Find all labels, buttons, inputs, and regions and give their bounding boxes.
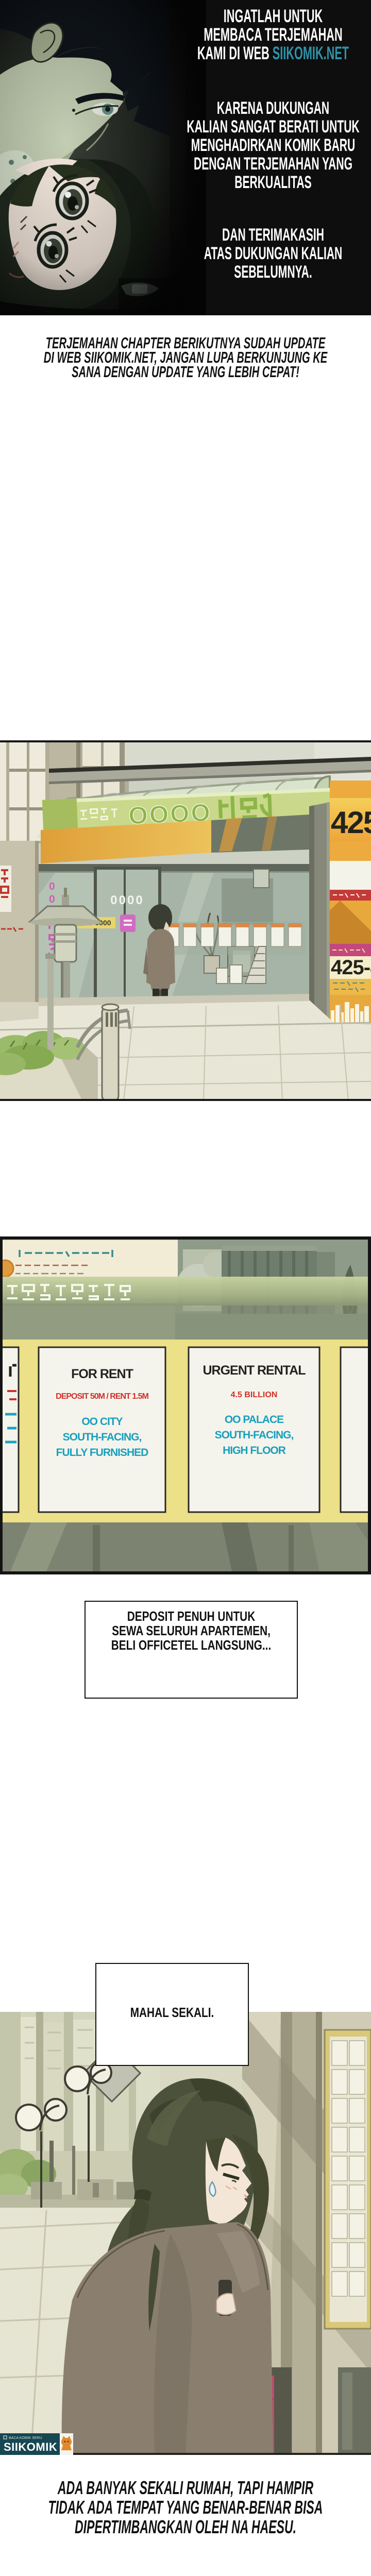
svg-text:SOUTH-FACING,: SOUTH-FACING, [63, 1431, 142, 1443]
svg-text:0000: 0000 [110, 893, 144, 907]
svg-text:OO PALACE: OO PALACE [225, 1414, 284, 1426]
svg-text:SIIKOMIK: SIIKOMIK [4, 2441, 57, 2453]
svg-text:BACA KOMIK SERU: BACA KOMIK SERU [9, 2436, 42, 2440]
svg-text:HIGH FLOOR: HIGH FLOOR [223, 1445, 286, 1456]
svg-text:425-8: 425-8 [331, 956, 371, 979]
svg-text:OO CITY: OO CITY [81, 1416, 123, 1428]
svg-text:FULLY FURNISHED: FULLY FURNISHED [56, 1447, 149, 1459]
svg-text:425-8: 425-8 [331, 805, 371, 840]
svg-text:0: 0 [49, 893, 55, 905]
svg-text:0: 0 [49, 880, 55, 892]
svg-text:DEPOSIT 50M / RENT 1.5M: DEPOSIT 50M / RENT 1.5M [56, 1392, 148, 1401]
svg-text:SOUTH-FACING,: SOUTH-FACING, [215, 1429, 294, 1441]
svg-text:URGENT RENTAL: URGENT RENTAL [203, 1363, 306, 1378]
svg-text:FOR RENT: FOR RENT [71, 1367, 133, 1381]
svg-text:4.5 BILLION: 4.5 BILLION [231, 1391, 278, 1399]
